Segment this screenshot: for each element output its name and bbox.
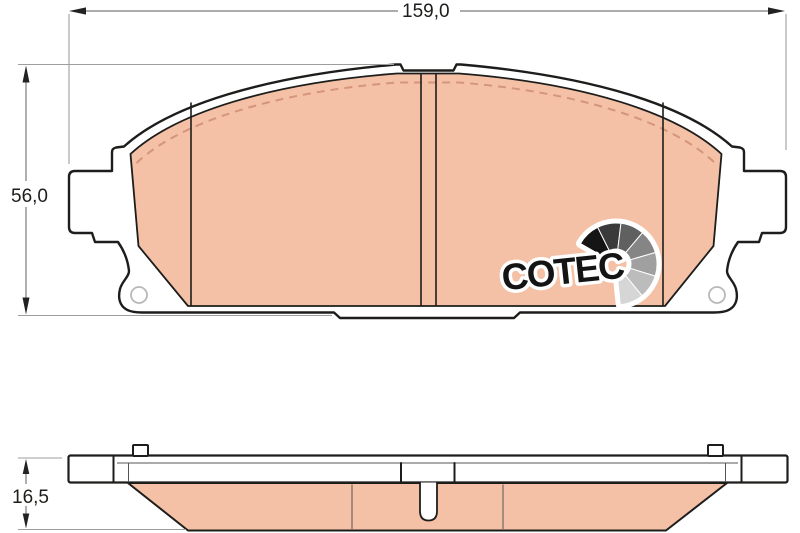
backplate-tab-left	[133, 445, 148, 456]
dim-thickness-label: 16,5	[12, 487, 49, 508]
side-friction-slot	[420, 483, 437, 521]
arrowhead	[23, 459, 30, 474]
dim-height-label: 56,0	[11, 186, 48, 207]
arrowhead	[23, 66, 30, 83]
arrowhead	[768, 7, 785, 14]
backplate-tab-right	[708, 445, 723, 456]
arrowhead	[23, 514, 30, 529]
drawing-canvas: COTEC	[0, 0, 800, 533]
arrowhead	[69, 7, 86, 14]
top-view: COTEC	[69, 65, 786, 319]
arrowhead	[23, 298, 30, 315]
side-view	[69, 445, 788, 531]
side-backplate-strip	[69, 456, 788, 483]
dim-width-label: 159,0	[402, 1, 450, 22]
brake-pad-technical-drawing: COTEC	[0, 0, 800, 533]
